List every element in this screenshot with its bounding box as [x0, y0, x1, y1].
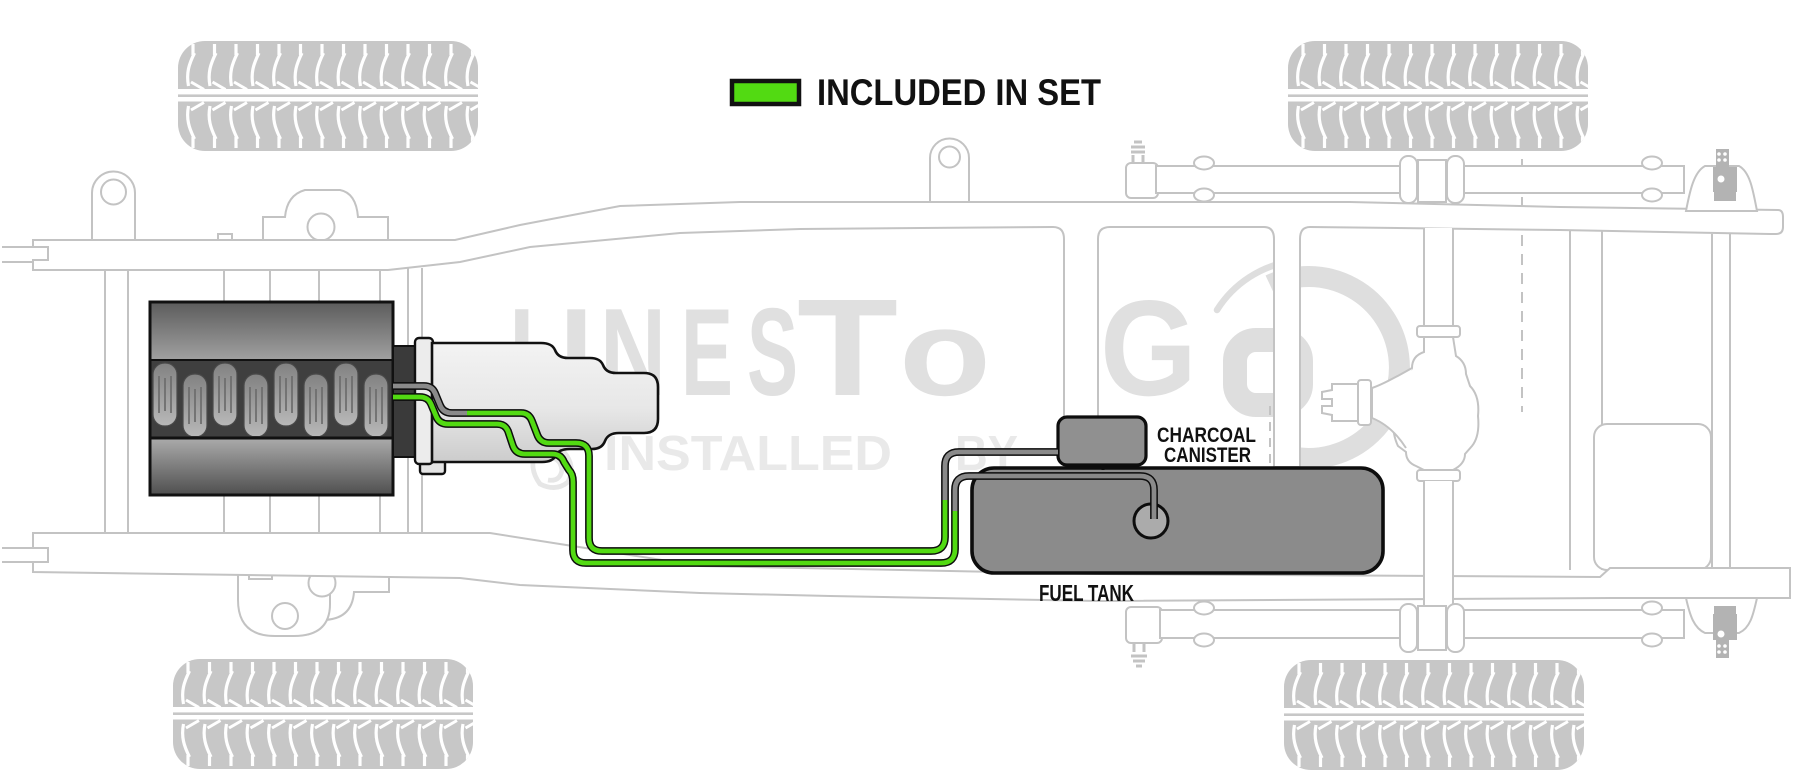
svg-text:CANISTER: CANISTER [1164, 443, 1251, 467]
svg-text:T: T [797, 271, 898, 425]
svg-text:S: S [747, 284, 798, 422]
svg-text:E: E [681, 284, 733, 422]
svg-text:o: o [899, 285, 991, 421]
svg-text:FUEL TANK: FUEL TANK [1039, 580, 1134, 606]
svg-text:G: G [1100, 272, 1197, 424]
svg-text:INSTALLED: INSTALLED [604, 427, 892, 481]
svg-text:INCLUDED IN SET: INCLUDED IN SET [817, 72, 1101, 113]
